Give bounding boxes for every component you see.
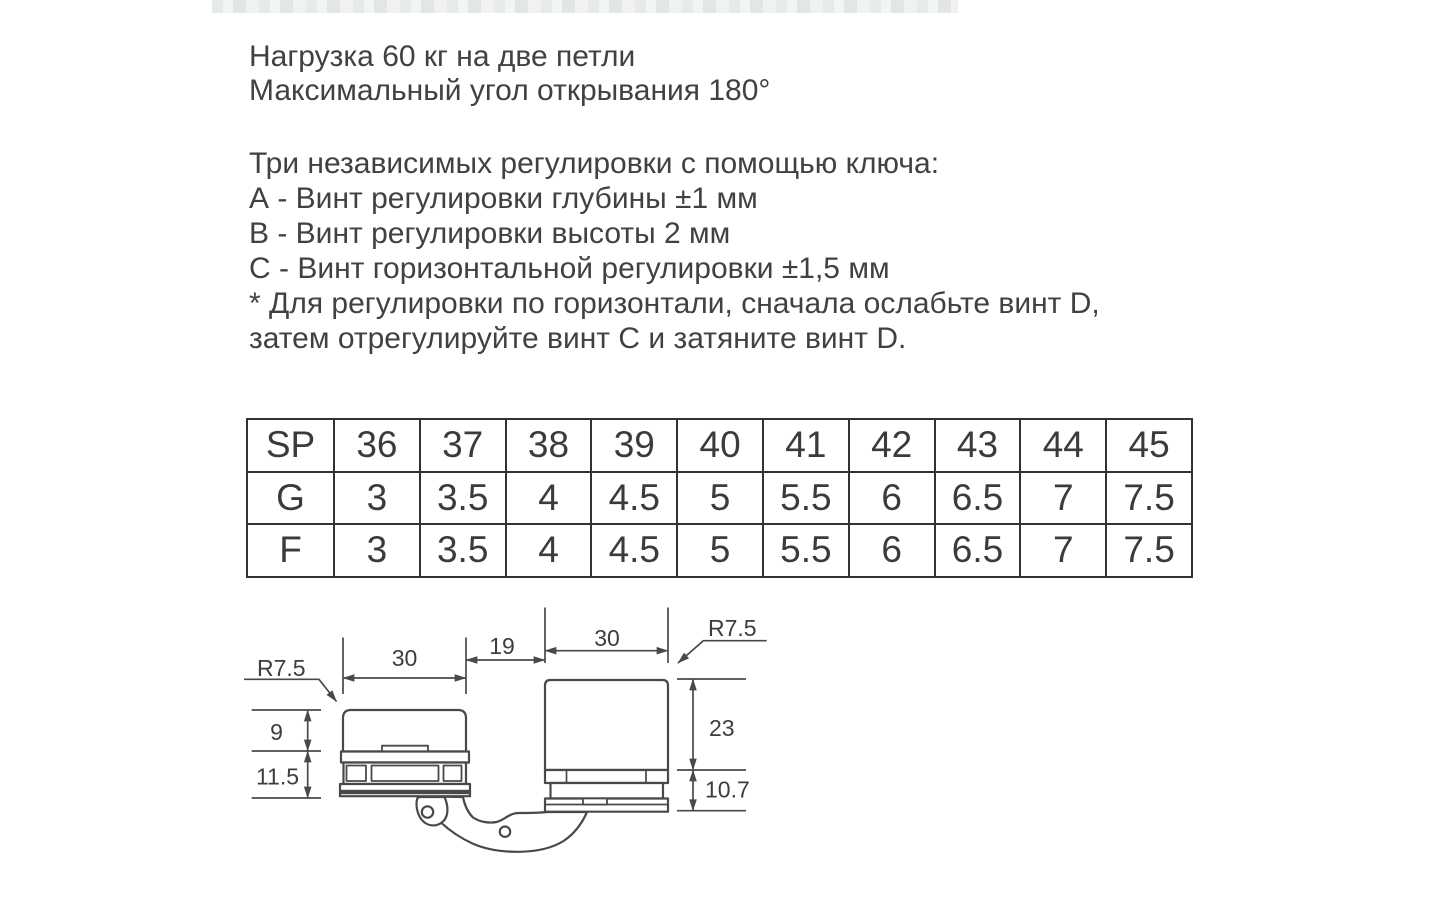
hinge-cup-side <box>340 710 470 796</box>
value-cell: 36 <box>334 419 420 472</box>
plate-row3-tab <box>583 799 607 805</box>
value-cell: 3.5 <box>420 524 506 577</box>
value-cell: 7.5 <box>1106 472 1192 525</box>
image-top-edge-strip <box>212 0 958 13</box>
value-cell: 4.5 <box>591 524 677 577</box>
value-cell: 3 <box>334 472 420 525</box>
dim-label-plate-radius: R7.5 <box>708 615 757 641</box>
value-cell: 4 <box>506 524 592 577</box>
value-cell: 41 <box>763 419 849 472</box>
value-cell: 6 <box>849 524 935 577</box>
value-cell: 5.5 <box>763 472 849 525</box>
cup-screw-left <box>347 766 367 782</box>
cup-screw-right <box>444 766 462 782</box>
value-cell: 45 <box>1106 419 1192 472</box>
value-cell: 4.5 <box>591 472 677 525</box>
cup-base-dark-band <box>341 790 469 794</box>
adjustments-text: Три независимых регулировки с помощью кл… <box>249 146 1100 356</box>
opening-angle-line: Максимальный угол открывания 180° <box>249 74 770 108</box>
table-row: G33.544.555.566.577.5 <box>247 472 1192 525</box>
value-cell: 37 <box>420 419 506 472</box>
dim-label-cup-width: 30 <box>392 645 418 671</box>
page: Нагрузка 60 кг на две петли Максимальный… <box>0 0 1440 900</box>
value-cell: 7 <box>1020 472 1106 525</box>
adjustment-item-c: С - Винт горизонтальной регулировки ±1,5… <box>249 251 1100 286</box>
value-cell: 5.5 <box>763 524 849 577</box>
value-cell: 6.5 <box>935 524 1021 577</box>
arm-screw-hole <box>500 827 510 837</box>
dim-label-cup-radius: R7.5 <box>257 655 306 681</box>
cup-band <box>341 752 469 763</box>
dim-label-plate-width: 30 <box>594 625 620 651</box>
plate-body <box>545 680 668 770</box>
adjustment-note-line1: * Для регулировки по горизонтали, сначал… <box>249 286 1100 321</box>
value-cell: 5 <box>677 524 763 577</box>
value-cell: 40 <box>677 419 763 472</box>
size-table-body: SP36373839404142434445G33.544.555.566.57… <box>247 419 1192 577</box>
plate-row1 <box>545 770 668 783</box>
dim-label-plate-lower-height: 10.7 <box>705 777 750 803</box>
intro-text: Нагрузка 60 кг на две петли Максимальный… <box>249 40 770 108</box>
plate-row2 <box>551 783 664 799</box>
cup-screw-center <box>372 766 439 782</box>
row-label-cell: G <box>247 472 334 525</box>
value-cell: 39 <box>591 419 677 472</box>
size-table: SP36373839404142434445G33.544.555.566.57… <box>246 418 1193 578</box>
dimension-labels: 30 19 30 R7.5 R7.5 9 11.5 23 10.7 <box>256 615 757 803</box>
hinge-technical-drawing: 30 19 30 R7.5 R7.5 9 11.5 23 10.7 <box>235 595 780 870</box>
value-cell: 7 <box>1020 524 1106 577</box>
value-cell: 3 <box>334 524 420 577</box>
value-cell: 7.5 <box>1106 524 1192 577</box>
value-cell: 5 <box>677 472 763 525</box>
adjustments-heading: Три независимых регулировки с помощью кл… <box>249 146 1100 181</box>
value-cell: 6.5 <box>935 472 1021 525</box>
value-cell: 38 <box>506 419 592 472</box>
value-cell: 44 <box>1020 419 1106 472</box>
table-row: SP36373839404142434445 <box>247 419 1192 472</box>
load-spec-line: Нагрузка 60 кг на две петли <box>249 40 770 74</box>
dim-label-gap-width: 19 <box>489 633 515 659</box>
adjustment-item-a: А - Винт регулировки глубины ±1 мм <box>249 181 1100 216</box>
dim-label-plate-height: 23 <box>709 715 735 741</box>
table-row: F33.544.555.566.577.5 <box>247 524 1192 577</box>
dim-label-cup-lower-height: 11.5 <box>256 764 299 790</box>
row-label-cell: SP <box>247 419 334 472</box>
value-cell: 3.5 <box>420 472 506 525</box>
lug-screw-hole <box>422 806 433 817</box>
adjustment-item-b: В - Винт регулировки высоты 2 мм <box>249 216 1100 251</box>
dim-label-cup-upper-height: 9 <box>270 719 283 745</box>
value-cell: 43 <box>935 419 1021 472</box>
mounting-plate-side <box>545 680 668 812</box>
value-cell: 4 <box>506 472 592 525</box>
row-label-cell: F <box>247 524 334 577</box>
value-cell: 42 <box>849 419 935 472</box>
adjustment-note-line2: затем отрегулируйте винт С и затяните ви… <box>249 321 1100 356</box>
value-cell: 6 <box>849 472 935 525</box>
